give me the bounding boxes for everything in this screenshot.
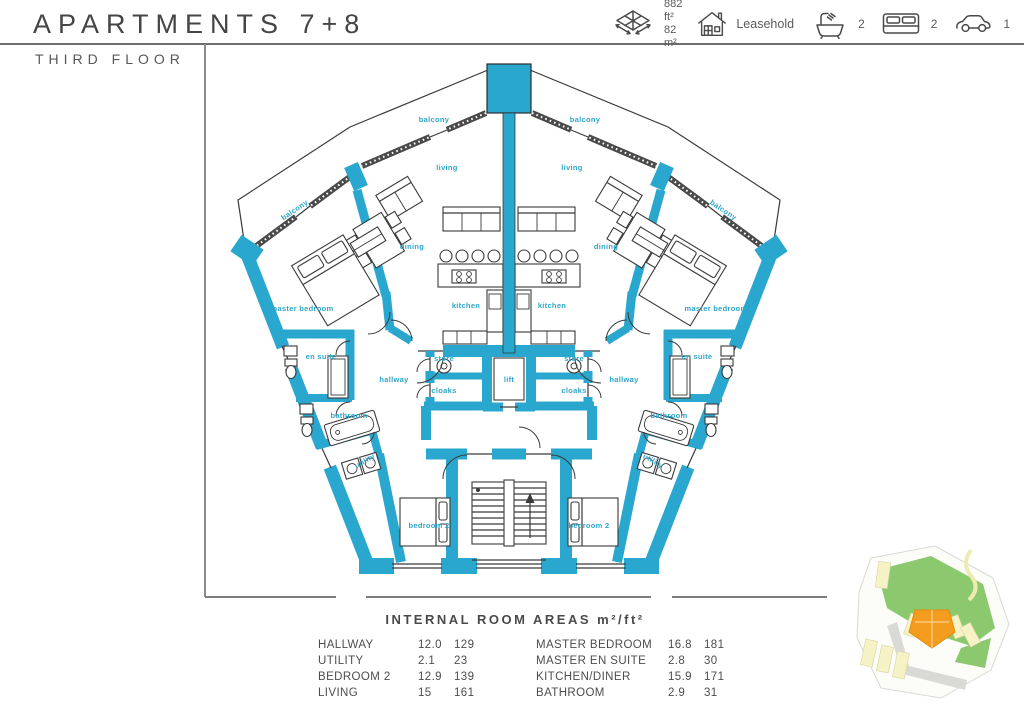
room-label-bedroom-2: bedroom 2: [408, 521, 449, 530]
staircase: [472, 480, 546, 560]
room-label-living: living: [561, 163, 583, 172]
room-label-hallway: hallway: [609, 375, 639, 384]
table-row: KITCHEN/DINER15.9171: [536, 671, 734, 687]
table-row: UTILITY2.123: [318, 655, 484, 671]
room-label-cloaks: cloaks: [431, 386, 456, 395]
room-label-bathroom: bathroom: [651, 411, 688, 420]
table-row: HALLWAY12.0129: [318, 639, 484, 655]
brochure-page: APARTMENTS 7+8 THIRD FLOOR 882 ft² 82 m²: [0, 0, 1024, 712]
site-location-map: [843, 540, 1023, 708]
room-label-dining: dining: [594, 242, 618, 251]
apartment-left: [236, 70, 509, 568]
room-label-bedroom-2: bedroom 2: [568, 521, 609, 530]
room-label-kitchen: kitchen: [452, 301, 480, 310]
room-label-cloaks: cloaks: [561, 386, 586, 395]
room-label-dining: dining: [400, 242, 424, 251]
room-label-kitchen: kitchen: [538, 301, 566, 310]
table-row: MASTER BEDROOM16.8181: [536, 639, 734, 655]
room-label-balcony: balcony: [570, 115, 601, 124]
room-label-en-suite: en suite: [682, 352, 713, 361]
room-label-bathroom: bathroom: [331, 411, 368, 420]
room-label-living: living: [436, 163, 458, 172]
table-row: LIVING15161: [318, 687, 484, 703]
table-row: BATHROOM2.931: [536, 687, 734, 703]
areas-table-title: INTERNAL ROOM AREAS m²/ft²: [280, 612, 750, 627]
areas-table-left: HALLWAY12.0129 UTILITY2.123 BEDROOM 212.…: [318, 639, 484, 703]
room-label-master-bedroom: master bedroom: [685, 304, 748, 313]
room-label-lift: lift: [504, 375, 515, 384]
room-label-store: store: [434, 354, 454, 363]
room-label-store: store: [564, 354, 584, 363]
room-label-hallway: hallway: [379, 375, 409, 384]
party-wall: [503, 113, 515, 353]
table-row: BEDROOM 212.9139: [318, 671, 484, 687]
room-label-master-bedroom: master bedroom: [271, 304, 334, 313]
core: [472, 64, 546, 560]
apex-wall: [487, 64, 531, 113]
armchair: [376, 176, 423, 220]
room-label-balcony: balcony: [419, 115, 450, 124]
areas-table-right: MASTER BEDROOM16.8181 MASTER EN SUITE2.8…: [536, 639, 734, 703]
apartment-right: [509, 70, 782, 568]
room-label-en-suite: en suite: [306, 352, 337, 361]
internal-room-areas: INTERNAL ROOM AREAS m²/ft² HALLWAY12.012…: [280, 612, 750, 703]
table-row: MASTER EN SUITE2.830: [536, 655, 734, 671]
